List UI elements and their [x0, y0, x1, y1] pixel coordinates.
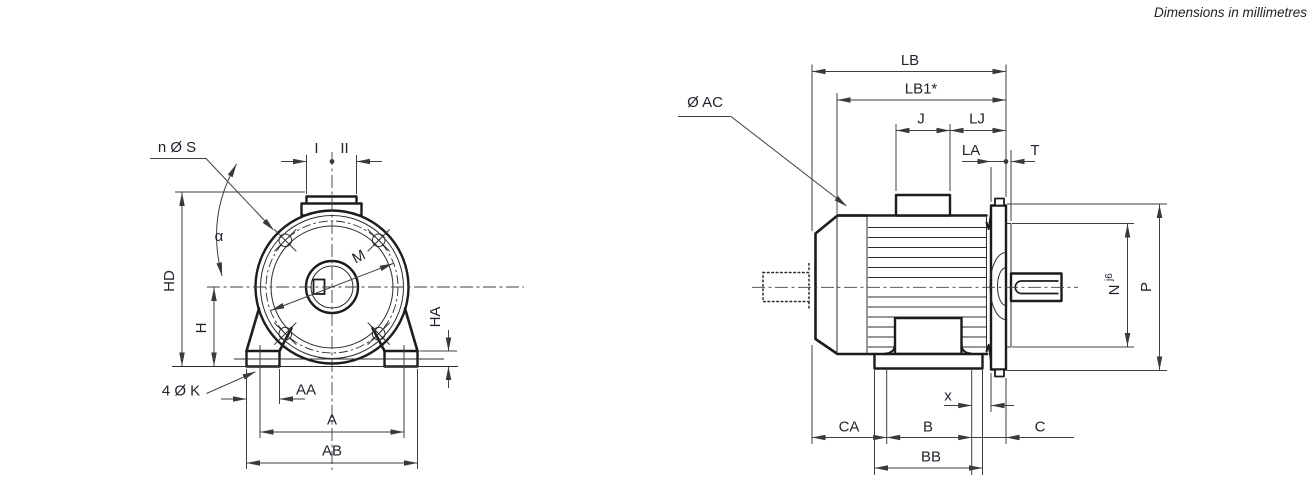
dim-label-t: T — [1030, 142, 1039, 159]
dim-label-x: x — [944, 388, 952, 405]
dim-label-lb: LB — [901, 52, 919, 69]
dim-label-n-tolerance: j6 — [1104, 273, 1115, 282]
dim-label-i: I — [314, 140, 318, 157]
dim-label-ca: CA — [839, 419, 860, 436]
dim-label-h: H — [193, 323, 210, 334]
mounting-foot-side — [875, 318, 983, 369]
dim-label-p: P — [1138, 282, 1155, 292]
dim-label-ii: II — [340, 140, 348, 157]
dim-label-a: A — [327, 412, 337, 429]
dim-label-ac: Ø AC — [687, 94, 723, 111]
dim-label-ab: AB — [322, 443, 342, 460]
units-note: Dimensions in millimetres — [1154, 5, 1307, 20]
dim-label-n-s: n Ø S — [158, 139, 196, 156]
dim-label-b: B — [923, 419, 933, 436]
dim-label-lb1: LB1* — [905, 81, 938, 98]
fan-cover — [816, 216, 875, 355]
dim-label-bb: BB — [921, 449, 941, 466]
dim-label-c: C — [1035, 419, 1046, 436]
dim-label-lj: LJ — [969, 111, 985, 128]
dim-label-j: J — [917, 111, 925, 128]
dim-label-alpha: α — [215, 228, 224, 245]
dim-label-ha: HA — [427, 307, 444, 328]
motor-dimension-drawing: n Ø S I II α HD H M HA 4 Ø K AA A AB — [0, 0, 1312, 482]
motor-dimension-drawing-page: n Ø S I II α HD H M HA 4 Ø K AA A AB — [0, 0, 1312, 482]
front-view: n Ø S I II α HD H M HA 4 Ø K AA A AB — [150, 139, 524, 470]
dim-label-la: LA — [962, 142, 980, 159]
terminal-box-side — [896, 195, 950, 216]
dim-label-n: N — [1106, 285, 1123, 296]
dim-label-hd: HD — [161, 270, 178, 292]
dim-label-k: 4 Ø K — [162, 383, 200, 400]
side-view: Ø AC LB LB1* J LJ LA T N j6 P CA B x C B… — [678, 52, 1167, 475]
dim-label-aa: AA — [296, 382, 316, 399]
